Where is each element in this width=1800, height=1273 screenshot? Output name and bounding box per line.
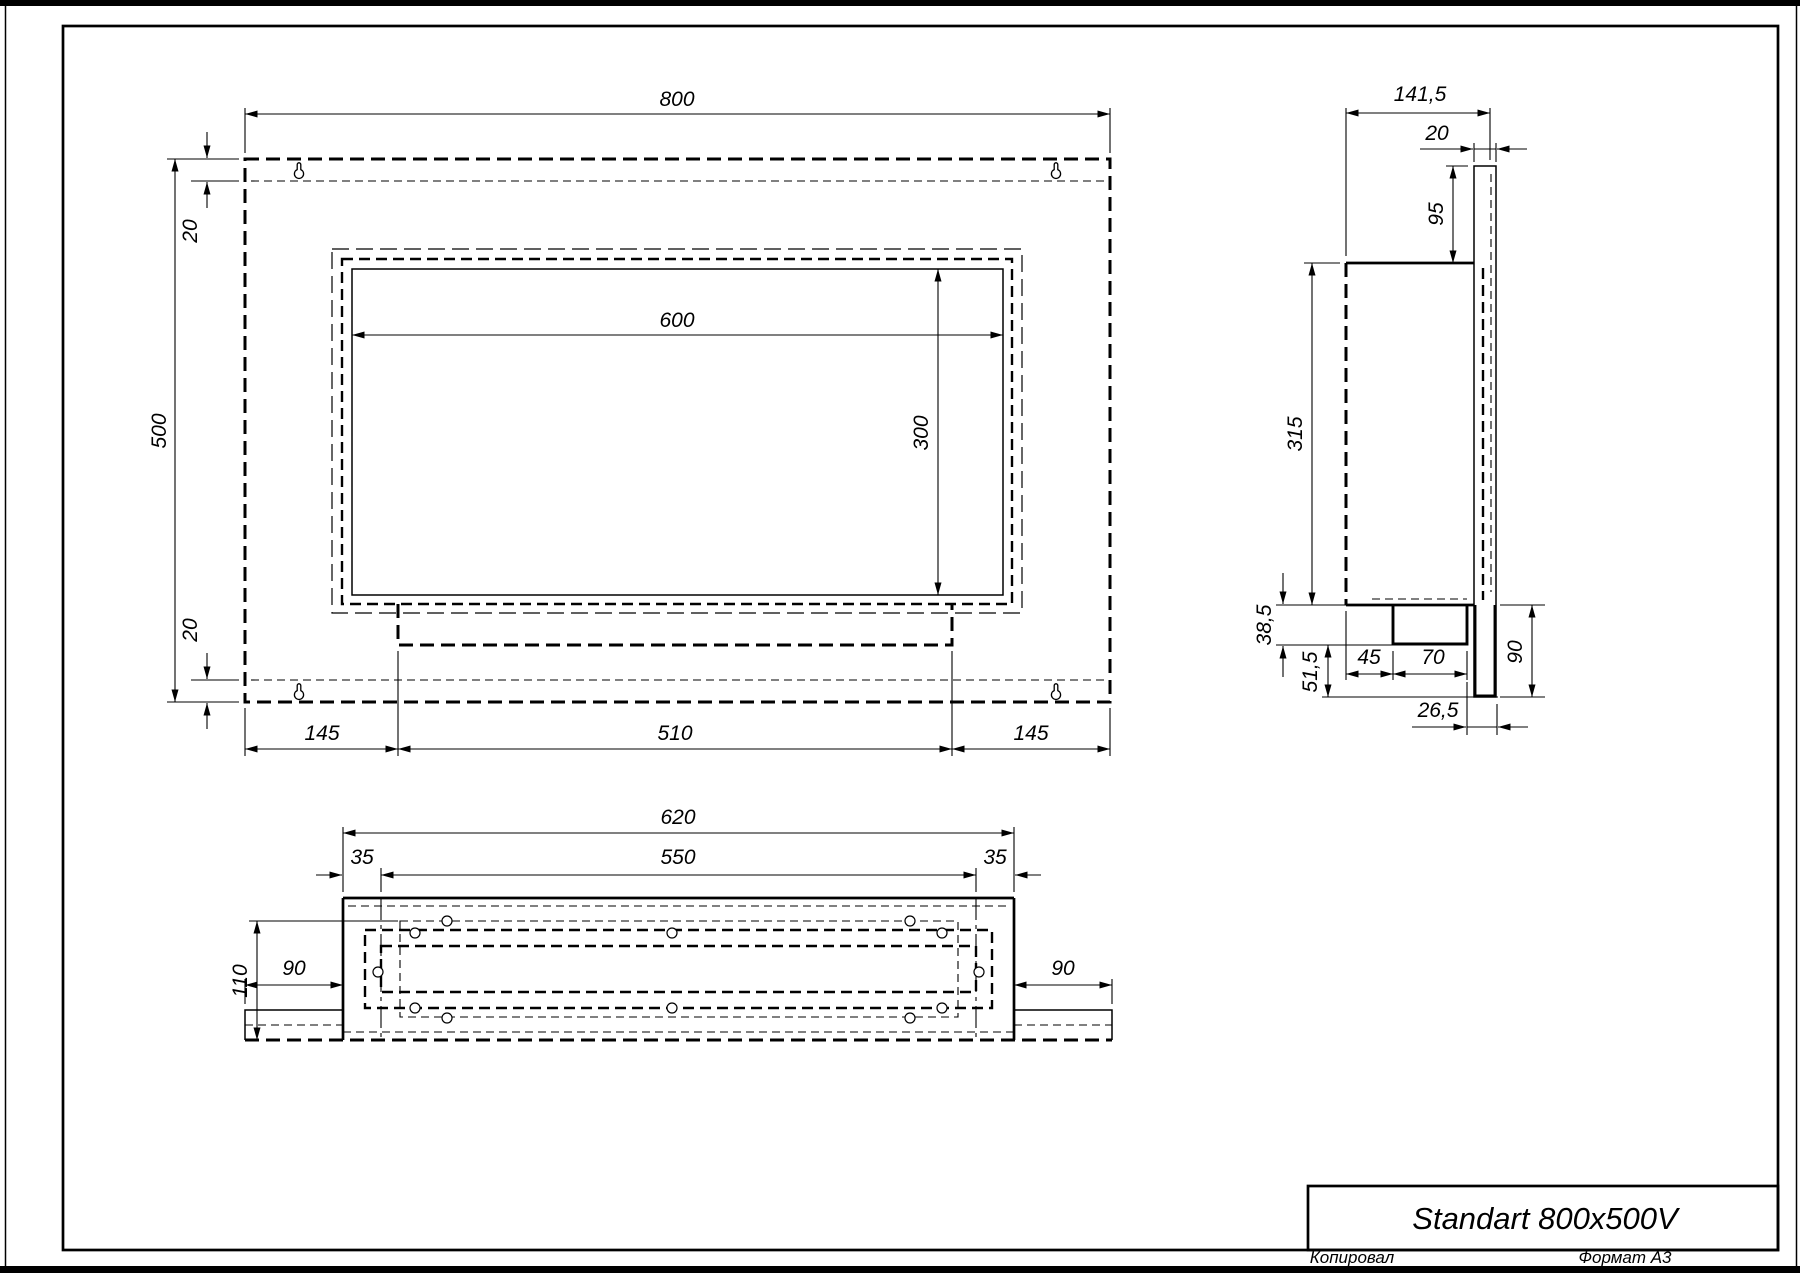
front-view: 800 500 20 20 600 300 145 510 145 — [148, 88, 1110, 756]
fv-dim-20-bottom: 20 — [179, 618, 202, 643]
mount-hole — [442, 1013, 452, 1023]
sv-dim-265: 26,5 — [1417, 699, 1459, 722]
sv-tank-outline — [1393, 605, 1467, 644]
mount-hole — [667, 1003, 677, 1013]
bv-dim-550: 550 — [660, 846, 695, 869]
bv-opening-outer — [400, 921, 958, 1017]
page-top-bar — [0, 0, 1800, 6]
mount-hole — [937, 928, 947, 938]
fv-dim-500: 500 — [148, 413, 171, 448]
mount-hole — [667, 928, 677, 938]
sv-dim-20: 20 — [1424, 122, 1449, 145]
mount-hole — [905, 1013, 915, 1023]
drawing-sheet: Standart 800x500V Копировал Формат А3 80… — [0, 0, 1800, 1273]
page-frame: Standart 800x500V Копировал Формат А3 — [0, 0, 1800, 1273]
side-view: 141,5 20 95 315 38,5 51,5 45 70 — [1253, 83, 1545, 735]
drawing-frame — [63, 26, 1778, 1250]
bv-dim-90-right: 90 — [1051, 957, 1075, 980]
fv-dim-145-right: 145 — [1013, 722, 1048, 745]
mount-hole — [937, 1003, 947, 1013]
bv-opening-frame-outer — [365, 930, 992, 1008]
sv-plate-lower-bar — [1475, 605, 1495, 696]
fv-dim-600: 600 — [659, 309, 694, 332]
sv-back-plate — [1474, 166, 1496, 697]
page-bottom-bar — [0, 1266, 1800, 1273]
bv-dim-35-left: 35 — [350, 846, 374, 869]
mount-hole — [974, 967, 984, 977]
keyhole-mount-icon — [1051, 684, 1060, 700]
fv-dim-510: 510 — [657, 722, 692, 745]
drawing-canvas: Standart 800x500V Копировал Формат А3 80… — [0, 0, 1800, 1273]
sv-dim-70: 70 — [1421, 646, 1445, 669]
fv-tray-outline — [398, 604, 952, 645]
bv-opening-frame-inner — [381, 946, 976, 992]
fv-dim-300: 300 — [910, 415, 933, 450]
keyhole-mount-icon — [1051, 163, 1060, 179]
mount-hole — [905, 916, 915, 926]
title-text: Standart 800x500V — [1412, 1201, 1681, 1236]
footer-format-label: Формат А3 — [1578, 1248, 1672, 1267]
bv-dim-110: 110 — [229, 964, 252, 998]
bv-dim-620: 620 — [660, 806, 695, 829]
fv-body-outline — [245, 159, 1110, 702]
fv-dim-800: 800 — [659, 88, 694, 111]
fv-dim-145-left: 145 — [304, 722, 339, 745]
mount-hole — [373, 967, 383, 977]
fv-dim-20-top: 20 — [179, 219, 202, 244]
sv-dim-315: 315 — [1284, 416, 1307, 451]
bv-dim-90-left: 90 — [282, 957, 306, 980]
mount-hole — [410, 1003, 420, 1013]
sv-dim-1415: 141,5 — [1394, 83, 1447, 106]
mount-hole — [442, 916, 452, 926]
mount-hole — [410, 928, 420, 938]
sv-dim-385: 38,5 — [1253, 604, 1276, 645]
sv-dim-95: 95 — [1425, 202, 1448, 226]
footer-copied-label: Копировал — [1310, 1248, 1395, 1267]
bottom-view: 620 35 550 35 110 90 90 — [229, 806, 1112, 1040]
keyhole-mount-icon — [294, 163, 303, 179]
keyhole-mount-icon — [294, 684, 303, 700]
sv-dim-515: 51,5 — [1299, 651, 1322, 692]
sv-dim-45: 45 — [1357, 646, 1381, 669]
bv-dim-35-right: 35 — [983, 846, 1007, 869]
sv-dim-90: 90 — [1504, 640, 1527, 664]
